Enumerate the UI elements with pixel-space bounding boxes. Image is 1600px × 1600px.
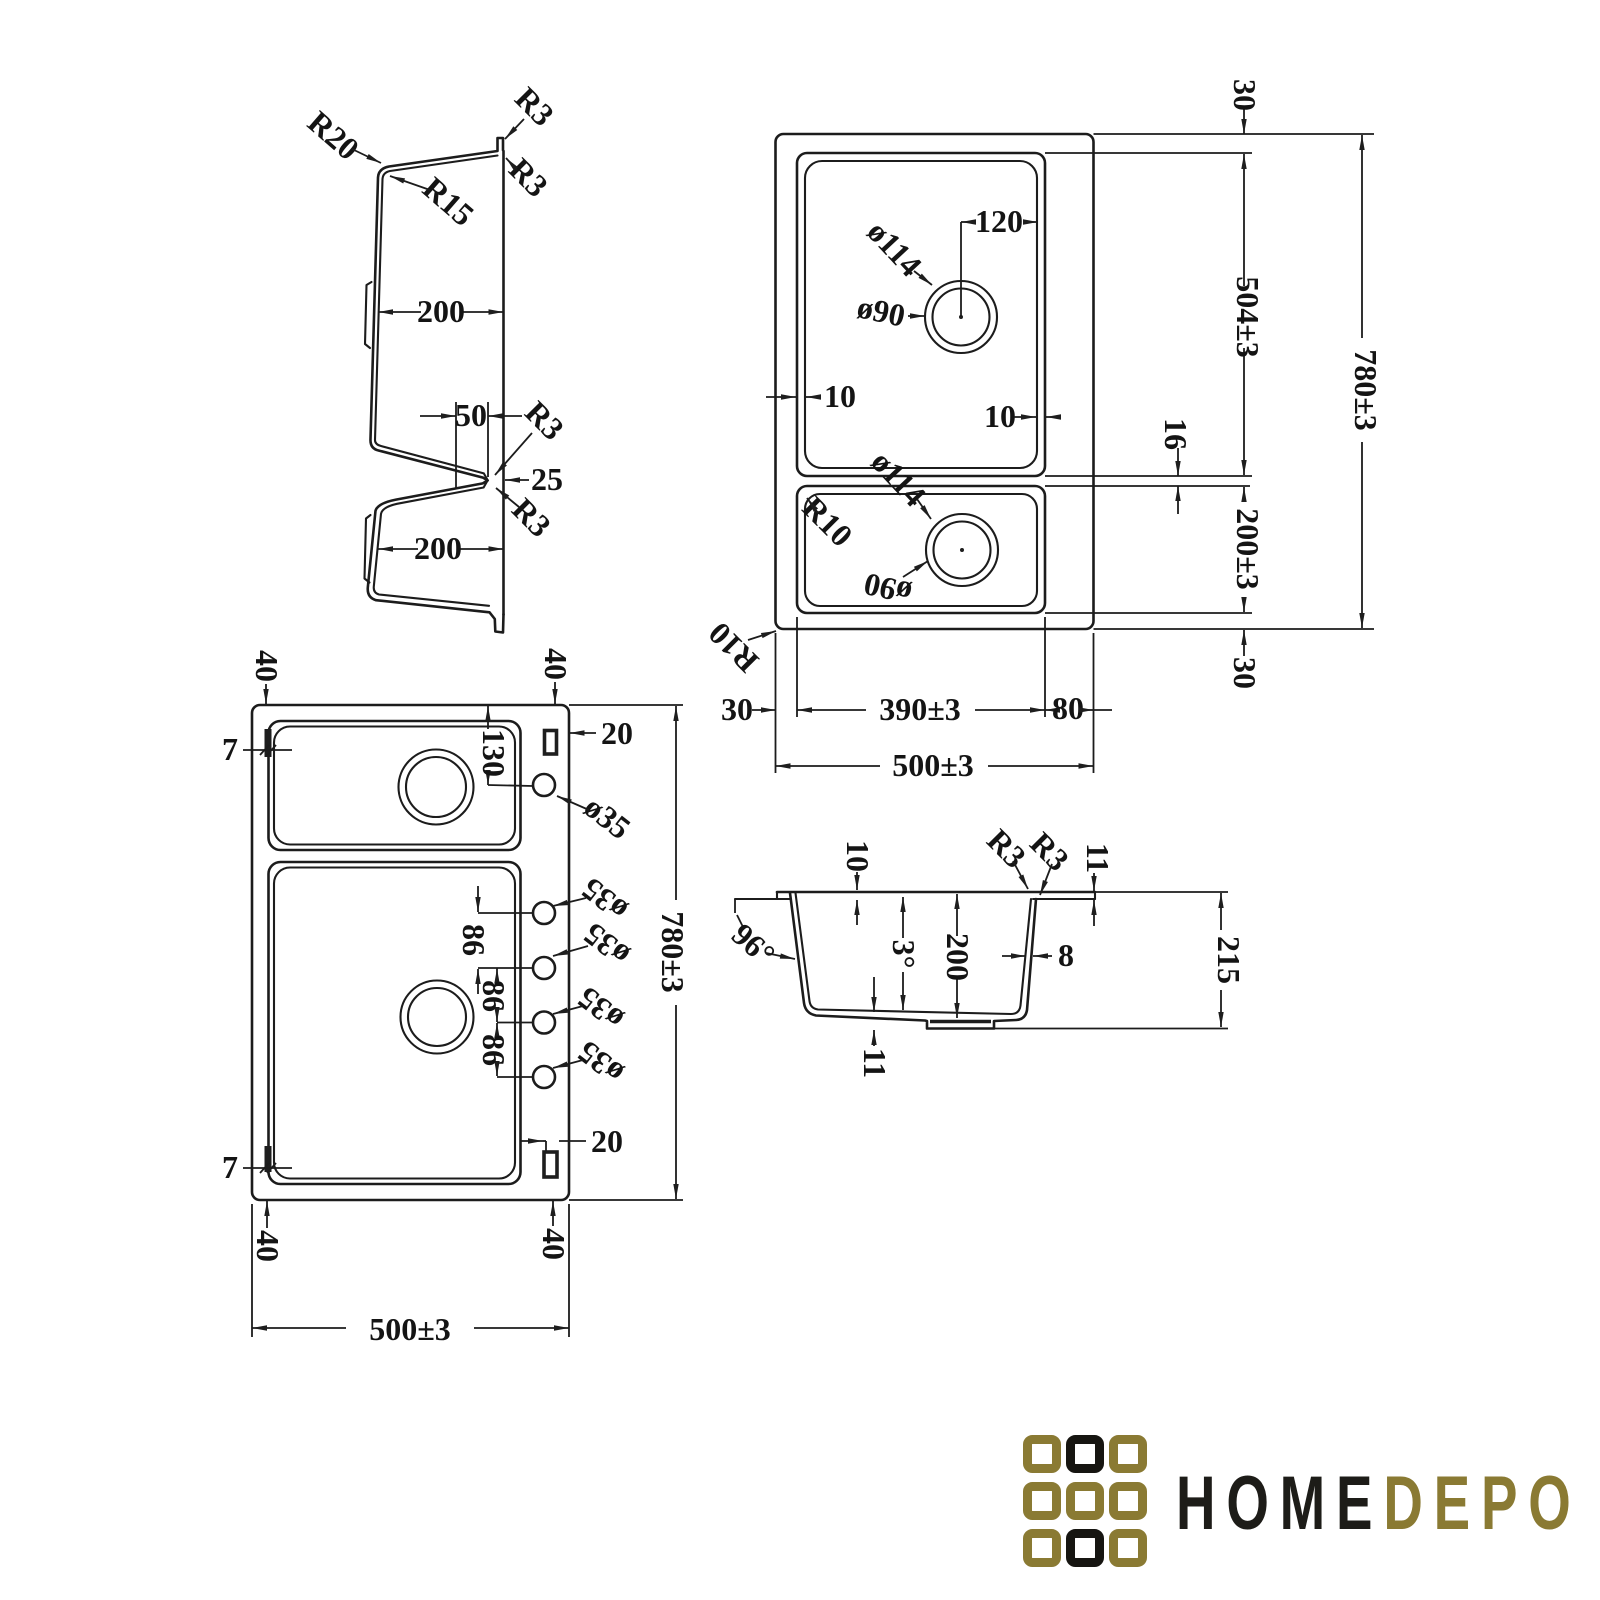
svg-text:3°: 3° xyxy=(886,940,922,969)
svg-text:30: 30 xyxy=(1227,79,1263,111)
svg-text:130: 130 xyxy=(476,729,512,777)
svg-text:215: 215 xyxy=(1211,936,1247,984)
svg-text:11: 11 xyxy=(1080,843,1116,873)
svg-text:200: 200 xyxy=(417,293,465,329)
svg-text:200±3: 200±3 xyxy=(1230,508,1266,590)
svg-text:50: 50 xyxy=(455,397,487,433)
svg-text:16: 16 xyxy=(1158,418,1194,450)
svg-text:25: 25 xyxy=(531,461,563,497)
svg-text:40: 40 xyxy=(538,648,574,680)
svg-text:10: 10 xyxy=(840,840,876,872)
svg-text:40: 40 xyxy=(250,1230,286,1262)
svg-text:80: 80 xyxy=(1052,690,1084,726)
svg-text:30: 30 xyxy=(1227,657,1263,689)
svg-text:500±3: 500±3 xyxy=(892,747,974,783)
svg-text:HOMEDEPO: HOMEDEPO xyxy=(1176,1461,1582,1546)
svg-text:40: 40 xyxy=(249,650,285,682)
svg-text:504±3: 504±3 xyxy=(1230,276,1266,358)
svg-text:10: 10 xyxy=(824,378,856,414)
svg-text:500±3: 500±3 xyxy=(369,1311,451,1347)
svg-text:86: 86 xyxy=(456,924,492,956)
svg-text:7: 7 xyxy=(222,731,238,767)
svg-text:120: 120 xyxy=(975,203,1023,239)
svg-text:86: 86 xyxy=(476,1034,512,1066)
svg-text:780±3: 780±3 xyxy=(1348,349,1384,431)
svg-text:390±3: 390±3 xyxy=(879,691,961,727)
svg-text:8: 8 xyxy=(1058,937,1074,973)
svg-text:780±3: 780±3 xyxy=(655,911,691,993)
svg-text:20: 20 xyxy=(601,715,633,751)
svg-text:7: 7 xyxy=(222,1149,238,1185)
svg-text:10: 10 xyxy=(984,398,1016,434)
svg-text:30: 30 xyxy=(721,691,753,727)
svg-text:40: 40 xyxy=(536,1228,572,1260)
svg-text:200: 200 xyxy=(940,933,976,981)
svg-text:200: 200 xyxy=(414,530,462,566)
svg-text:86: 86 xyxy=(476,980,512,1012)
svg-text:20: 20 xyxy=(591,1123,623,1159)
svg-text:11: 11 xyxy=(857,1048,893,1078)
